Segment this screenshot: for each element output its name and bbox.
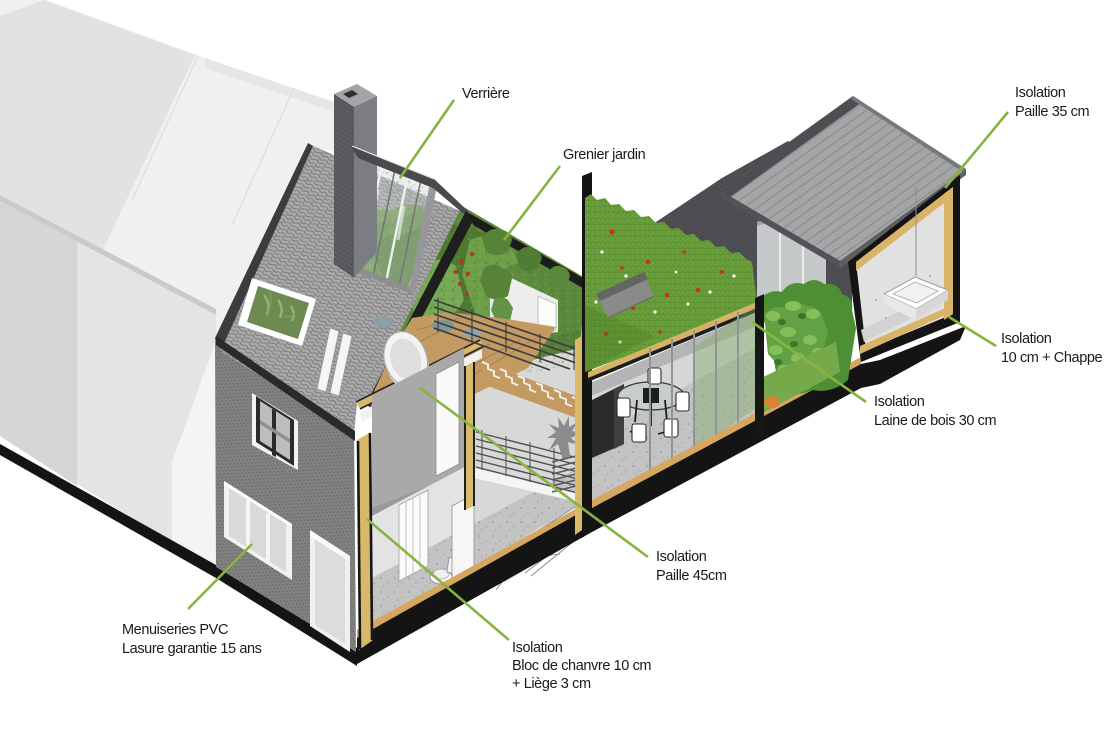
svg-text:10 cm + Chappe: 10 cm + Chappe (1001, 350, 1103, 366)
svg-text:Bloc de chanvre 10 cm: Bloc de chanvre 10 cm (512, 658, 651, 674)
svg-text:Verrière: Verrière (462, 86, 510, 102)
svg-text:Isolation: Isolation (1001, 331, 1052, 347)
svg-text:+ Liège 3 cm: + Liège 3 cm (512, 676, 591, 692)
svg-text:Paille 35 cm: Paille 35 cm (1015, 104, 1089, 120)
svg-text:Isolation: Isolation (874, 394, 925, 410)
svg-text:Isolation: Isolation (512, 640, 563, 656)
svg-text:Paille 45cm: Paille 45cm (656, 568, 727, 584)
svg-text:Isolation: Isolation (1015, 85, 1066, 101)
svg-text:Menuiseries PVC: Menuiseries PVC (122, 622, 228, 638)
svg-text:Grenier jardin: Grenier jardin (563, 147, 646, 163)
svg-text:Isolation: Isolation (656, 549, 707, 565)
svg-text:Laine de bois 30 cm: Laine de bois 30 cm (874, 413, 996, 429)
svg-text:Lasure garantie 15 ans: Lasure garantie 15 ans (122, 641, 262, 657)
